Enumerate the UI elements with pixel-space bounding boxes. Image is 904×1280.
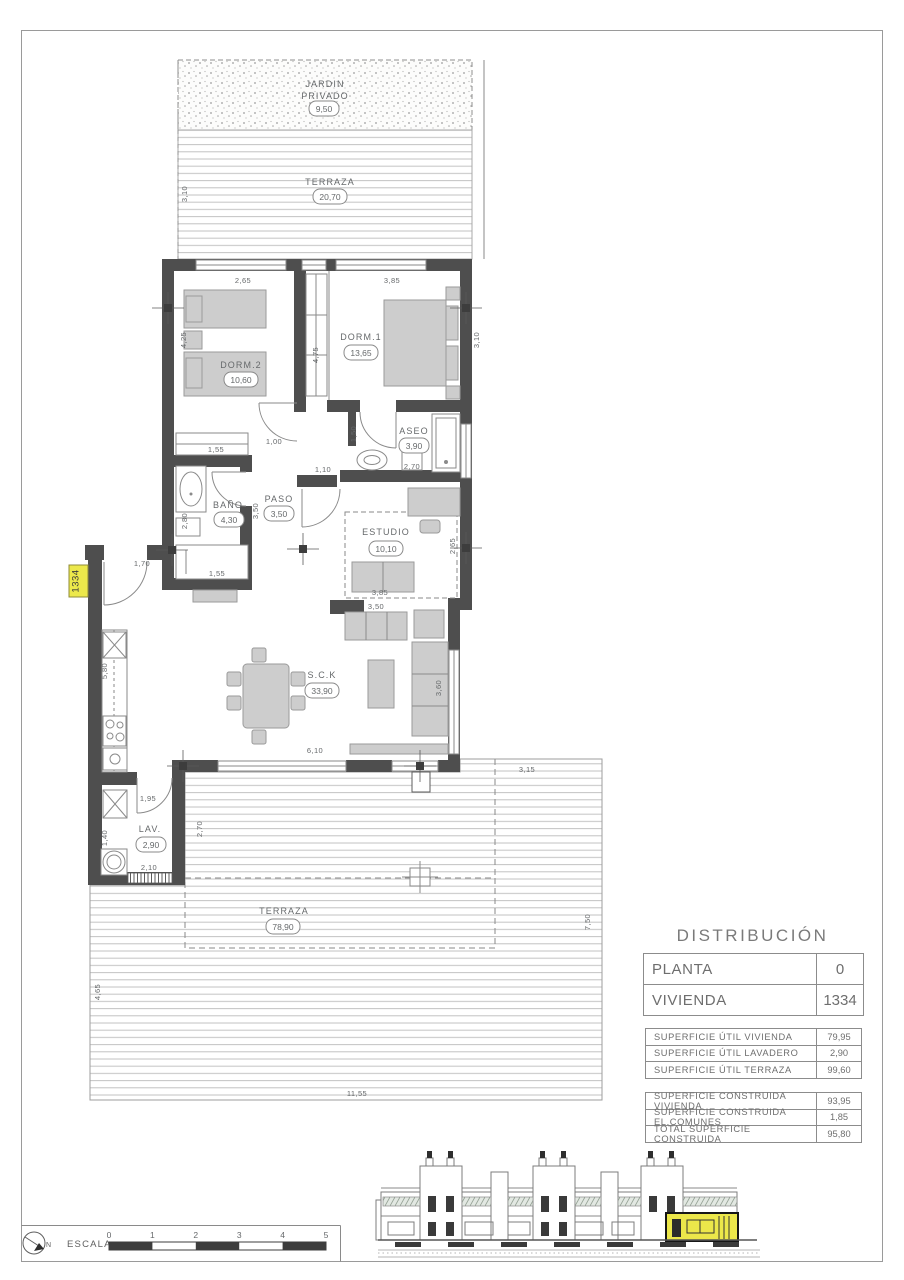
dim: 6,10: [307, 746, 323, 755]
row-value: 79,95: [816, 1029, 861, 1045]
drawing: JARDIN PRIVADO 9,50 TERRAZA 20,70 3,10 T…: [0, 0, 904, 1280]
svg-text:0: 0: [107, 1230, 112, 1240]
table-row: SUPERFICIE CONSTRUIDA VIVIENDA 93,95: [646, 1093, 861, 1109]
sck-label: S.C.K: [307, 670, 336, 680]
built-surface-table: SUPERFICIE CONSTRUIDA VIVIENDA 93,95 SUP…: [645, 1092, 862, 1143]
table-row: SUPERFICIE ÚTIL TERRAZA 99,60: [646, 1061, 861, 1078]
terrace-main-label: TERRAZA: [259, 906, 309, 916]
north-label: N: [46, 1242, 51, 1249]
dim: 1,70: [134, 559, 150, 568]
dining-set: [227, 648, 305, 744]
dim: 3,85: [384, 276, 400, 285]
svg-text:1: 1: [150, 1230, 155, 1240]
distribution-table: PLANTA 0 VIVIENDA 1334: [643, 953, 864, 1016]
dim: 1,50: [349, 426, 358, 442]
row-label: SUPERFICIE ÚTIL LAVADERO: [646, 1048, 816, 1058]
ground-lines: [378, 1240, 760, 1257]
dim: 11,55: [347, 1089, 367, 1098]
dim: 2,70: [195, 821, 204, 837]
svg-text:2: 2: [193, 1230, 198, 1240]
table-row: SUPERFICIE ÚTIL LAVADERO 2,90: [646, 1045, 861, 1062]
row-value: 93,95: [816, 1093, 861, 1109]
entrance-door: [104, 562, 147, 605]
scale-ticks: 0 1 2 3 4 5: [107, 1230, 329, 1240]
window: [196, 260, 286, 270]
row-label: VIVIENDA: [644, 992, 816, 1009]
dim: 1,55: [208, 445, 224, 454]
window: [302, 260, 326, 270]
private-garden: JARDIN PRIVADO 9,50: [178, 60, 472, 130]
dim: 2,80: [180, 513, 189, 529]
dorm2-label: DORM.2: [220, 360, 262, 370]
aseo-label: ASEO: [399, 426, 428, 436]
lav-area: 2,90: [143, 840, 160, 850]
table-row: SUPERFICIE ÚTIL VIVIENDA 79,95: [646, 1029, 861, 1045]
table-row: VIVIENDA 1334: [644, 984, 863, 1015]
sck-area: 33,90: [311, 686, 333, 696]
row-value: 99,60: [816, 1062, 861, 1078]
window: [336, 260, 426, 270]
paso-area: 3,50: [271, 509, 288, 519]
svg-text:4: 4: [280, 1230, 285, 1240]
corridor-wardrobe: [306, 274, 327, 396]
dim: 2,65: [235, 276, 251, 285]
highlighted-unit: [666, 1213, 738, 1241]
distribution-title: DISTRIBUCIÓN: [643, 926, 862, 946]
dorm1-label: DORM.1: [340, 332, 382, 342]
dim: 3,10: [472, 332, 481, 348]
garden-label-1: JARDIN: [305, 79, 344, 89]
dim: 3,50: [368, 602, 384, 611]
scale-bar: N ESCALA : 0 1 2 3 4 5: [23, 1230, 329, 1254]
window: [218, 761, 346, 771]
bano-label: BAÑO: [213, 500, 243, 510]
row-label: PLANTA: [644, 961, 816, 978]
dorm1-area: 13,65: [350, 348, 372, 358]
lav-label: LAV.: [139, 824, 161, 834]
row-value: 0: [816, 954, 863, 984]
dim: 7,50: [583, 914, 592, 930]
aseo-area: 3,90: [406, 441, 423, 451]
paso-label: PASO: [265, 494, 294, 504]
plan-sheet: JARDIN PRIVADO 9,50 TERRAZA 20,70 3,10 T…: [0, 0, 904, 1280]
dim: 1,10: [315, 465, 331, 474]
dim: 2,10: [141, 863, 157, 872]
dorm2-area: 10,60: [230, 375, 252, 385]
scale-segments: [109, 1242, 326, 1250]
terrace-step: [412, 772, 430, 792]
table-row: SUPERFICIE CONSTRUIDA EL.COMUNES 1,85: [646, 1109, 861, 1126]
row-value: 1334: [816, 985, 863, 1015]
dim: 3,85: [372, 588, 388, 597]
terrace-main-area: 78,90: [272, 922, 294, 932]
garden-label-2: PRIVADO: [301, 91, 349, 101]
floor-plan: JARDIN PRIVADO 9,50 TERRAZA 20,70 3,10 T…: [69, 60, 602, 1100]
kitchen: [102, 630, 127, 772]
bano-area: 4,30: [221, 515, 238, 525]
row-value: 1,85: [816, 1110, 861, 1126]
terrace-door-window: [449, 650, 459, 754]
table-row: TOTAL SUPERFICIE CONSTRUIDA 95,80: [646, 1125, 861, 1142]
table-row: PLANTA 0: [644, 954, 863, 984]
dim: 3,15: [519, 765, 535, 774]
unit-tag: 1334: [69, 565, 88, 597]
unit-tag-text: 1334: [71, 569, 82, 592]
dim: 3,50: [251, 503, 260, 519]
row-label: SUPERFICIE ÚTIL VIVIENDA: [646, 1032, 816, 1042]
stair-towers: [420, 1151, 683, 1240]
estudio-area: 10,10: [375, 544, 397, 554]
paso-door: [302, 489, 340, 527]
dorm1-furniture: [384, 287, 460, 399]
dim: 1,55: [209, 569, 225, 578]
garden-area: 9,50: [316, 104, 333, 114]
dorm2-door: [259, 403, 297, 441]
building-elevation: [376, 1151, 760, 1257]
dim: 1,95: [140, 794, 156, 803]
dim: 4,25: [179, 332, 188, 348]
svg-text:3: 3: [237, 1230, 242, 1240]
aseo-door: [360, 412, 396, 448]
svg-text:5: 5: [324, 1230, 329, 1240]
row-value: 95,80: [816, 1126, 861, 1142]
dim: 3,10: [180, 186, 189, 202]
dim: 4,65: [93, 984, 102, 1000]
window: [461, 424, 471, 478]
vent-grille: [128, 873, 172, 883]
terrace-main: TERRAZA 78,90 3,15 7,50 4,65 11,55: [90, 759, 602, 1100]
dim: 1,00: [266, 437, 282, 446]
north-compass-icon: N: [23, 1232, 51, 1254]
row-label: SUPERFICIE ÚTIL TERRAZA: [646, 1065, 816, 1075]
dim: 5,80: [100, 663, 109, 679]
useful-surface-table: SUPERFICIE ÚTIL VIVIENDA 79,95 SUPERFICI…: [645, 1028, 862, 1079]
dim: 4,75: [311, 347, 320, 363]
dim: 2,70: [404, 462, 420, 471]
dim: 1,40: [100, 830, 109, 846]
dim: 3,60: [434, 680, 443, 696]
estudio-label: ESTUDIO: [362, 527, 410, 537]
terrace-top-area: 20,70: [319, 192, 341, 202]
row-value: 2,90: [816, 1046, 861, 1062]
estudio-furniture: [345, 488, 460, 598]
dim: 2,65: [448, 538, 457, 554]
terrace-top-label: TERRAZA: [305, 177, 355, 187]
row-label: TOTAL SUPERFICIE CONSTRUIDA: [646, 1124, 816, 1144]
